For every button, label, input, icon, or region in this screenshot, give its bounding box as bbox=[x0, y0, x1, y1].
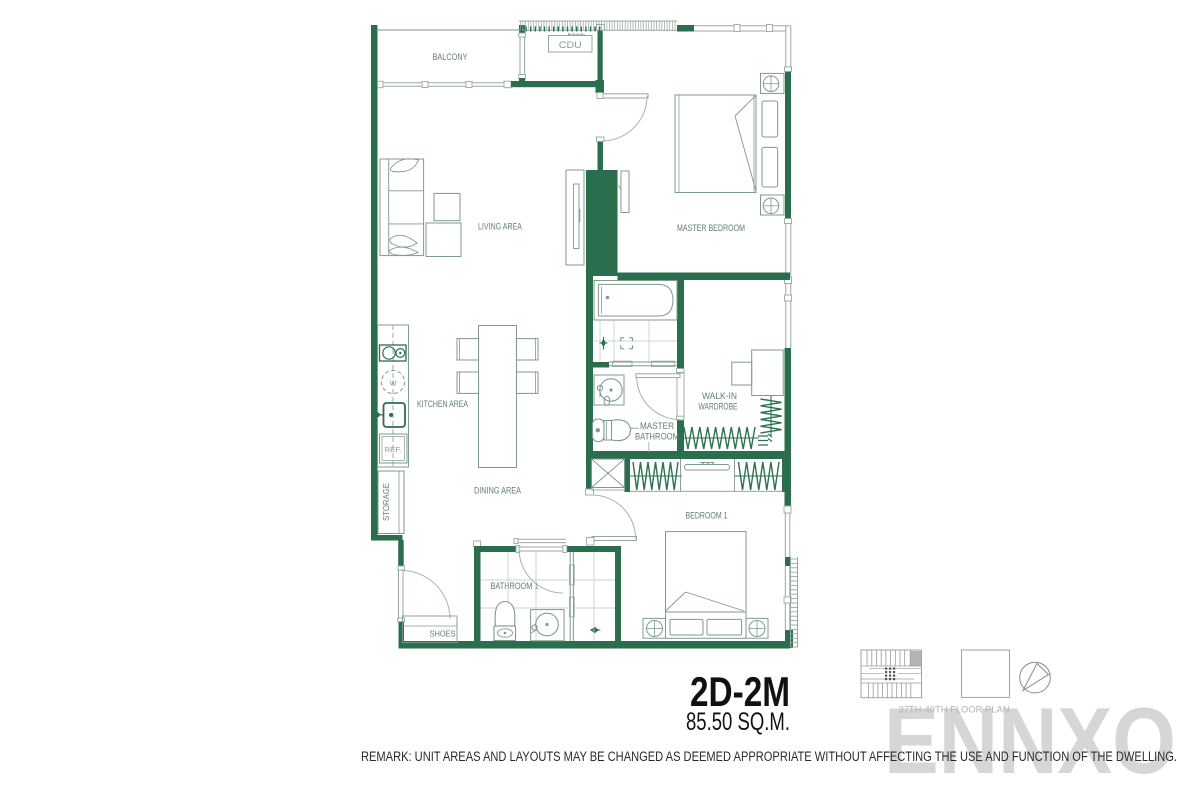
svg-text:STORAGE: STORAGE bbox=[381, 483, 391, 521]
svg-text:85.50 SQ.M.: 85.50 SQ.M. bbox=[686, 708, 790, 736]
svg-text:BATHROOM 1: BATHROOM 1 bbox=[491, 581, 539, 591]
svg-text:WALK-IN: WALK-IN bbox=[702, 391, 737, 401]
svg-text:REMARK: UNIT AREAS AND LAYOUTS: REMARK: UNIT AREAS AND LAYOUTS MAY BE CH… bbox=[361, 749, 1177, 765]
svg-text:DINING AREA: DINING AREA bbox=[474, 486, 521, 496]
svg-text:BATHROOM: BATHROOM bbox=[635, 432, 679, 442]
svg-text:WARDROBE: WARDROBE bbox=[699, 402, 738, 412]
svg-text:LIVING AREA: LIVING AREA bbox=[478, 222, 522, 232]
svg-text:REF.: REF. bbox=[385, 445, 402, 454]
svg-text:SHOES: SHOES bbox=[430, 629, 456, 639]
svg-text:BALCONY: BALCONY bbox=[433, 52, 468, 62]
svg-text:KITCHEN AREA: KITCHEN AREA bbox=[417, 399, 468, 409]
svg-text:MASTER BEDROOM: MASTER BEDROOM bbox=[677, 223, 745, 233]
svg-text:MASTER: MASTER bbox=[640, 421, 674, 431]
svg-text:37TH-40TH FLOOR PLAN: 37TH-40TH FLOOR PLAN bbox=[899, 705, 1010, 716]
svg-text:W: W bbox=[389, 379, 397, 388]
svg-text:CDU: CDU bbox=[559, 40, 582, 51]
svg-text:BEDROOM 1: BEDROOM 1 bbox=[686, 511, 728, 521]
